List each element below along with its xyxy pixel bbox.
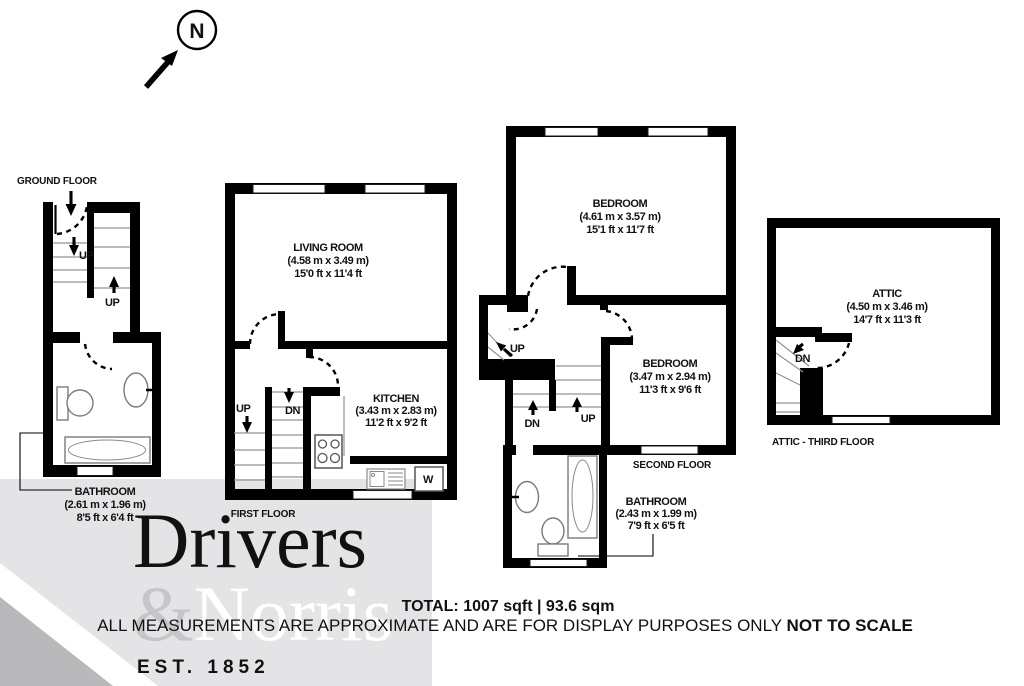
room-name: ATTIC	[872, 288, 902, 300]
window	[545, 128, 598, 137]
second-floor-plan: UP DN UP BEDROOM (4.61 m x 3.57 m) 15'1 …	[479, 126, 736, 568]
entry-arrow-icon	[66, 191, 77, 216]
door-arc	[85, 344, 112, 369]
watermark-est-text: EST. 1852	[137, 657, 270, 678]
room-dims-metric: (2.43 m x 1.99 m)	[615, 508, 697, 520]
window	[648, 128, 708, 137]
room-name: BEDROOM	[593, 198, 648, 210]
ground-floor-plan: GROUND FLOOR	[17, 176, 161, 524]
door-arc	[250, 314, 280, 344]
room-dims-metric: (3.47 m x 2.94 m)	[629, 371, 711, 383]
window	[832, 417, 890, 424]
room-dims-metric: (3.43 m x 2.83 m)	[355, 405, 437, 417]
room-name: BATHROOM	[626, 496, 687, 508]
first-floor-plan: UP DN W	[225, 183, 457, 520]
room-dims-imperial: 15'0 ft x 11'4 ft	[294, 268, 362, 280]
washing-machine-icon: W	[415, 467, 443, 491]
floorplan-page: Drivers &Norris EST. 1852 N GROUND FLOOR	[0, 0, 1024, 686]
room-dims-imperial: 7'9 ft x 6'5 ft	[628, 520, 685, 532]
room-dims-metric: (4.58 m x 3.49 m)	[287, 255, 369, 267]
window	[77, 467, 113, 476]
washer-label: W	[423, 474, 434, 486]
door-arc	[817, 343, 849, 368]
down-arrow-icon	[242, 416, 252, 433]
window	[365, 185, 425, 194]
stairs-label: UP	[79, 250, 94, 262]
stairs-label: UP	[105, 297, 120, 309]
room-dims-imperial: 8'5 ft x 6'4 ft	[77, 512, 134, 524]
total-area-text: TOTAL: 1007 sqft | 93.6 sqm	[402, 598, 615, 615]
room-name: BEDROOM	[643, 358, 698, 370]
room-dims-imperial: 14'7 ft x 11'3 ft	[853, 314, 921, 326]
toilet-icon	[538, 518, 568, 556]
up-arrow-icon	[109, 276, 119, 293]
window	[353, 491, 412, 500]
toilet-icon	[57, 387, 93, 420]
sink-icon	[512, 482, 539, 513]
room-dims-imperial: 11'2 ft x 9'2 ft	[365, 417, 428, 429]
room-name: BATHROOM	[75, 486, 136, 498]
attic-floor-plan: DN ATTIC (4.50 m x 3.46 m) 14'7 ft x 11'…	[767, 218, 1000, 448]
watermark-word2: &Norris	[133, 570, 393, 657]
door-arc	[509, 309, 537, 329]
hob-icon	[315, 435, 342, 468]
down-arrow-icon	[69, 237, 79, 256]
room-name: LIVING ROOM	[293, 242, 363, 254]
window	[641, 446, 698, 454]
compass-needle	[146, 62, 168, 87]
bathtub-icon	[568, 456, 597, 538]
room-dims-imperial: 11'3 ft x 9'6 ft	[639, 384, 702, 396]
bathtub-icon	[65, 437, 150, 463]
compass-label: N	[189, 20, 204, 43]
up-arrow-icon	[572, 397, 582, 412]
stairs-label: UP	[581, 413, 596, 425]
kitchen-sink-unit-icon	[367, 469, 405, 489]
window	[530, 560, 587, 567]
door-arc	[606, 311, 632, 340]
room-name: KITCHEN	[373, 393, 420, 405]
room-dims-metric: (4.50 m x 3.46 m)	[846, 301, 928, 313]
stairs-label: DN	[524, 418, 540, 430]
disclaimer-text: ALL MEASUREMENTS ARE APPROXIMATE AND ARE…	[97, 616, 913, 635]
door-arc	[309, 357, 338, 385]
window	[253, 185, 325, 194]
room-dims-imperial: 15'1 ft x 11'7 ft	[586, 224, 654, 236]
room-dims-metric: (4.61 m x 3.57 m)	[579, 211, 661, 223]
first-floor-title: FIRST FLOOR	[231, 509, 296, 520]
ground-floor-title: GROUND FLOOR	[17, 176, 98, 187]
door-arc	[528, 267, 567, 296]
attic-floor-title: ATTIC - THIRD FLOOR	[772, 437, 875, 448]
sink-icon	[124, 373, 152, 407]
floorplan-canvas: Drivers &Norris EST. 1852 N GROUND FLOOR	[0, 0, 1024, 686]
room-dims-metric: (2.61 m x 1.96 m)	[64, 499, 146, 511]
stairs-label: DN	[285, 405, 301, 417]
north-arrow-icon: N	[146, 11, 216, 87]
stairs-label: DN	[795, 353, 811, 365]
down-arrow-icon	[284, 388, 294, 403]
second-floor-title: SECOND FLOOR	[633, 460, 712, 471]
stairs-label: UP	[236, 403, 251, 415]
up-arrow-icon	[528, 400, 538, 415]
door-opening	[516, 444, 533, 456]
stairs-label: UP	[510, 343, 525, 355]
